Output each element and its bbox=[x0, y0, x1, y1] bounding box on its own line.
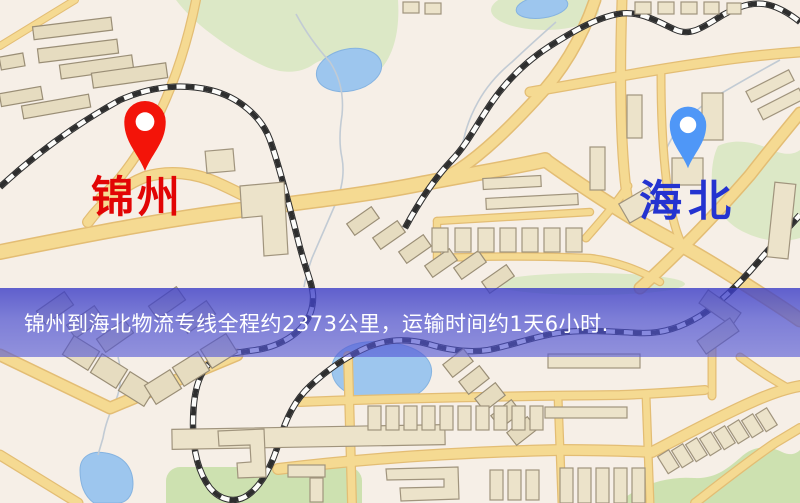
destination-pin-icon[interactable] bbox=[666, 104, 710, 170]
route-info-banner: 锦州到海北物流专线全程约2373公里，运输时间约1天6小时. bbox=[0, 288, 800, 357]
origin-pin-icon[interactable] bbox=[121, 98, 169, 173]
origin-pin-shape bbox=[124, 101, 165, 171]
destination-label: 海北 bbox=[639, 181, 737, 224]
route-info-text: 锦州到海北物流专线全程约2373公里，运输时间约1天6小时. bbox=[0, 308, 609, 338]
map-viewport: 锦州 海北 锦州到海北物流专线全程约2373公里，运输时间约1天6小时. bbox=[0, 0, 800, 503]
destination-pin-hole bbox=[680, 117, 697, 134]
origin-label: 锦州 bbox=[91, 177, 183, 220]
destination-pin-shape bbox=[670, 107, 706, 169]
map-canvas[interactable] bbox=[0, 0, 800, 503]
origin-pin-hole bbox=[136, 112, 155, 131]
